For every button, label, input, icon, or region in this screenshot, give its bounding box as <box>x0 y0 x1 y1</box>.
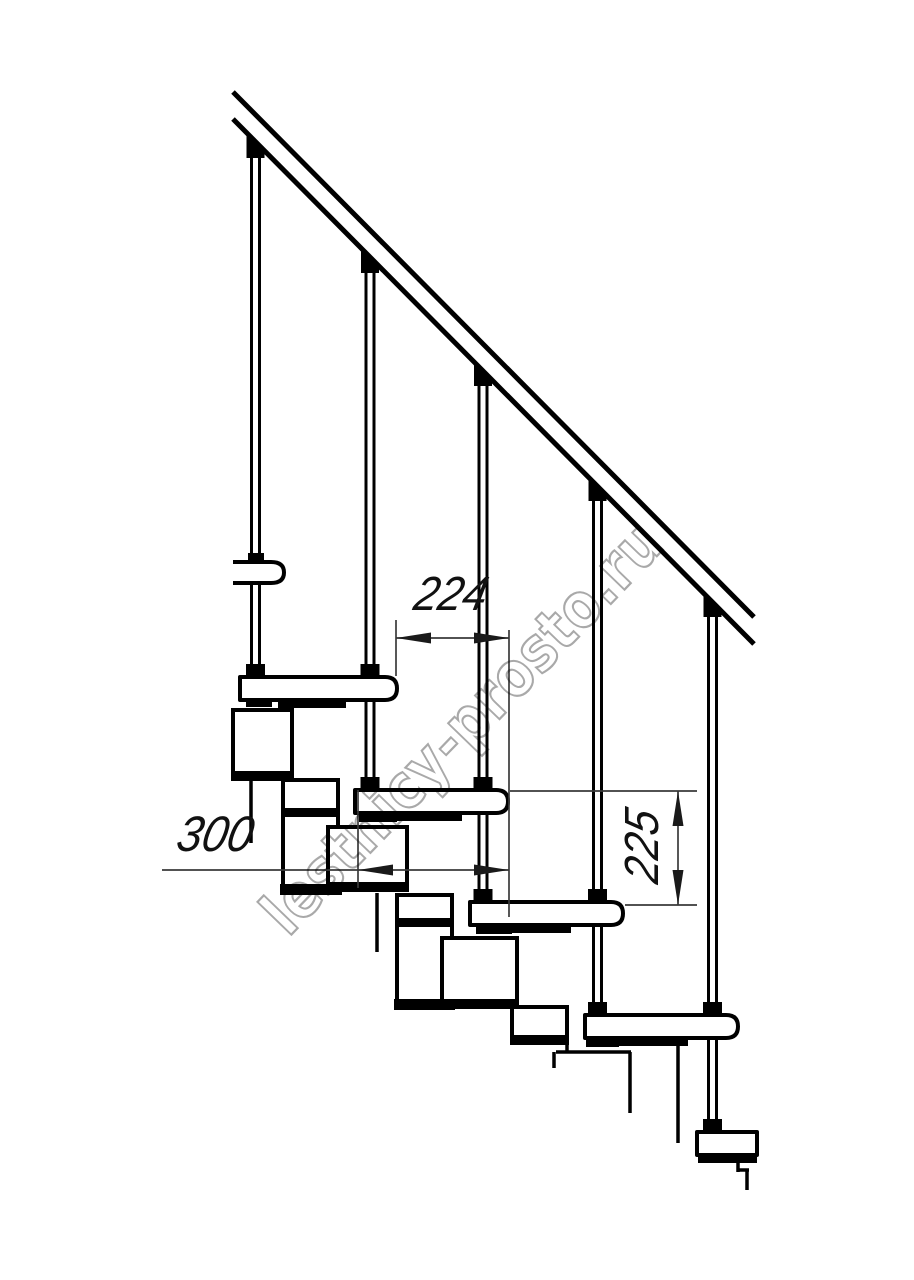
module-box-3 <box>442 938 517 1007</box>
tread-1 <box>240 677 397 700</box>
arrowhead-right <box>474 865 509 876</box>
baluster-5 <box>707 605 718 1132</box>
module-riser-2-joint <box>399 918 450 927</box>
module-box-4-foot <box>510 1035 569 1043</box>
tread-3 <box>470 902 623 925</box>
module-box-1 <box>233 710 292 779</box>
handrail <box>233 92 754 644</box>
baluster-1 <box>250 150 261 677</box>
arrowhead-right <box>474 633 509 644</box>
dimension-value-run: 224 <box>409 566 493 620</box>
arrowhead-left <box>396 633 431 644</box>
module-box-2-foot <box>330 882 405 890</box>
handrail-top-line <box>233 92 754 617</box>
dimension-run-224: 224 <box>396 566 509 917</box>
handrail-bottom-line <box>233 119 754 644</box>
tread-4 <box>585 1015 738 1038</box>
module-box-3-foot <box>444 999 515 1007</box>
tread-5 <box>697 1132 757 1155</box>
staircase-drawing: 224 300 225 <box>0 0 914 1280</box>
tread-undersides <box>246 700 757 1163</box>
module-box-2 <box>328 827 407 890</box>
arrowhead-up <box>673 791 684 826</box>
stringer-modules <box>231 710 569 1043</box>
staircase-drawing-canvas: 224 300 225 lestnicy-prosto.ru <box>0 0 914 1280</box>
baluster-2 <box>365 260 376 790</box>
baluster-4 <box>592 489 603 1015</box>
wall-bracket <box>233 553 284 583</box>
rail-cap-4 <box>589 477 607 501</box>
dimension-value-depth: 300 <box>172 806 259 862</box>
dimension-value-rise: 225 <box>614 803 668 888</box>
dimension-rise-225: 225 <box>510 791 697 905</box>
tread-2 <box>355 790 508 813</box>
arrowhead-down <box>673 870 684 905</box>
module-riser-1-joint <box>285 808 336 817</box>
